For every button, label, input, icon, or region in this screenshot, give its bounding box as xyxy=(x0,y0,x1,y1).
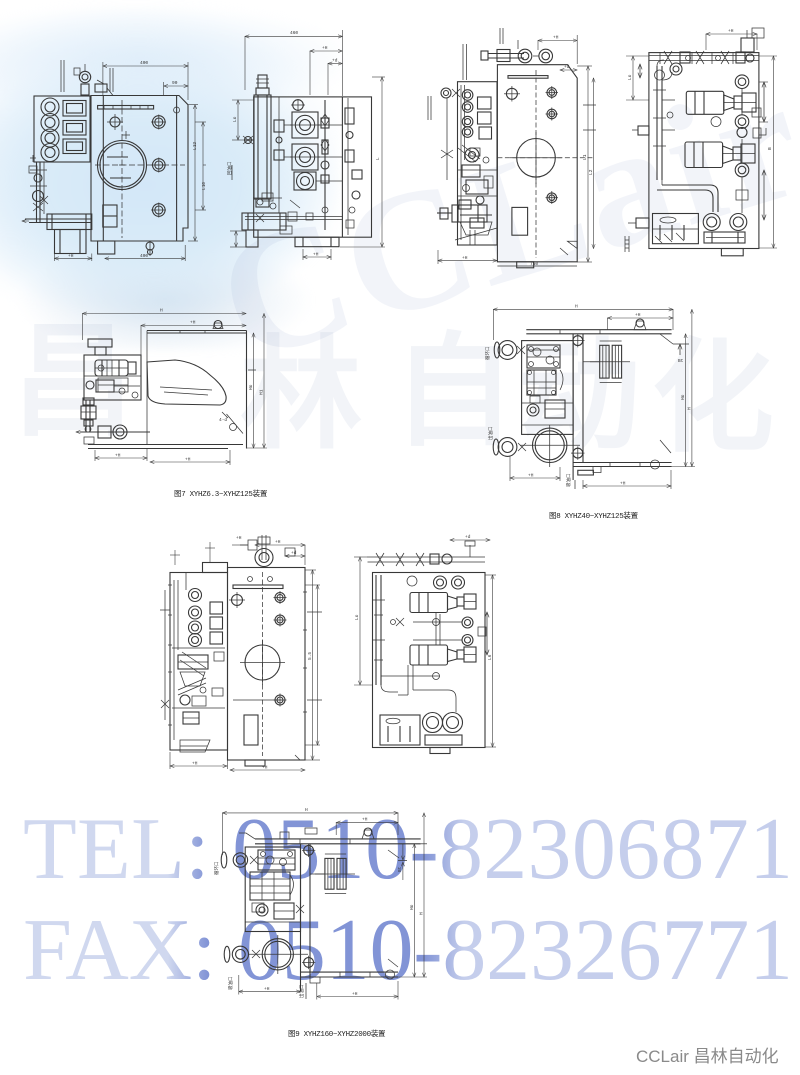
svg-text:L12: L12 xyxy=(192,142,198,150)
svg-text:+H: +H xyxy=(262,765,268,771)
svg-text:Lo: Lo xyxy=(232,116,238,122)
svg-text:循环口: 循环口 xyxy=(484,347,491,361)
svg-text:L2: L2 xyxy=(588,169,594,175)
svg-text:+d: +d xyxy=(291,550,297,556)
svg-text:吸油口: 吸油口 xyxy=(565,474,572,488)
svg-text:+H: +H xyxy=(275,539,281,545)
svg-text:Bt: Bt xyxy=(397,866,403,872)
svg-text:+d: +d xyxy=(332,58,338,64)
svg-text:L6: L6 xyxy=(487,654,493,660)
svg-text:回油口: 回油口 xyxy=(226,162,233,176)
svg-text:+H: +H xyxy=(362,817,368,823)
svg-text:H: H xyxy=(419,912,425,915)
svg-text:+H: +H xyxy=(313,252,319,258)
svg-text:L10: L10 xyxy=(201,182,207,190)
svg-text:出油口: 出油口 xyxy=(298,985,305,999)
svg-text:B: B xyxy=(767,147,773,150)
svg-text:+H: +H xyxy=(322,45,328,51)
svg-text:4-d: 4-d xyxy=(219,417,227,423)
svg-text:L1: L1 xyxy=(582,154,588,160)
svg-text:+H: +H xyxy=(68,253,74,259)
svg-text:+H: +H xyxy=(462,255,468,261)
svg-text:+H: +H xyxy=(192,761,198,767)
svg-text:吸油口: 吸油口 xyxy=(227,977,234,991)
svg-text:Lo: Lo xyxy=(627,74,633,80)
svg-text:5.5: 5.5 xyxy=(307,652,313,660)
svg-text:+d: +d xyxy=(465,534,471,540)
svg-text:460: 460 xyxy=(290,30,298,36)
svg-text:Ho: Ho xyxy=(409,904,415,910)
svg-text:Ho: Ho xyxy=(680,394,686,400)
svg-text:+H: +H xyxy=(190,320,196,326)
svg-text:Lo: Lo xyxy=(354,614,360,620)
svg-text:出油口: 出油口 xyxy=(487,427,494,441)
svg-text:H: H xyxy=(575,304,578,310)
svg-text:H: H xyxy=(687,407,693,410)
svg-text:+H: +H xyxy=(236,535,242,541)
svg-text:+H: +H xyxy=(185,457,191,463)
svg-text:+H: +H xyxy=(728,28,734,34)
svg-text:H: H xyxy=(160,308,163,314)
svg-text:H1: H1 xyxy=(259,389,265,395)
svg-text:+H: +H xyxy=(635,312,641,318)
svg-text:400: 400 xyxy=(140,60,148,66)
svg-text:+H: +H xyxy=(264,986,270,992)
svg-text:Ho: Ho xyxy=(248,384,254,390)
svg-text:+H: +H xyxy=(553,35,559,41)
svg-text:+H: +H xyxy=(115,453,121,459)
svg-text:H: H xyxy=(305,807,308,813)
svg-text:Bt: Bt xyxy=(678,358,684,364)
svg-text:+H: +H xyxy=(620,481,626,487)
svg-text:+H: +H xyxy=(352,991,358,997)
svg-text:循环口: 循环口 xyxy=(213,862,220,876)
svg-text:L: L xyxy=(375,157,381,160)
svg-text:90: 90 xyxy=(172,80,178,86)
svg-text:750: 750 xyxy=(530,261,538,267)
svg-text:+d: +d xyxy=(564,64,570,70)
svg-text:400: 400 xyxy=(140,253,148,259)
svg-text:+H: +H xyxy=(528,473,534,479)
